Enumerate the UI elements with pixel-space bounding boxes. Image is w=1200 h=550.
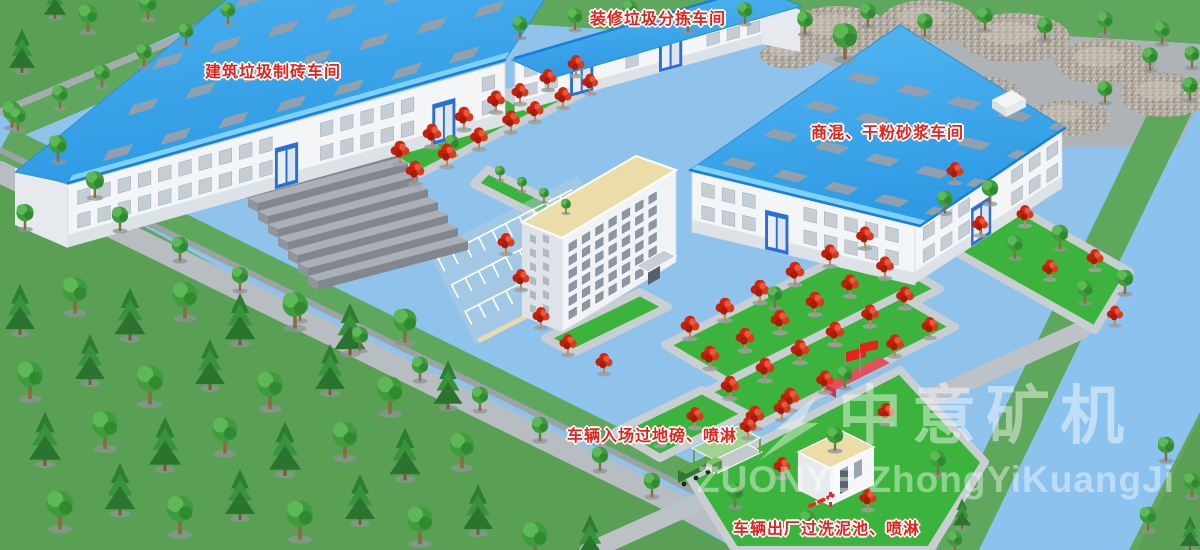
tree: [407, 506, 432, 548]
truck-wheel: [682, 482, 687, 487]
tree: [412, 357, 428, 384]
tree: [394, 309, 417, 347]
tree: [532, 417, 548, 444]
tree: [47, 491, 73, 534]
tree: [833, 23, 858, 63]
tree: [797, 12, 813, 37]
label-brick-workshop: 建筑垃圾制砖车间: [205, 58, 341, 82]
tree: [838, 366, 853, 390]
tree: [213, 417, 238, 457]
tree: [768, 286, 783, 310]
tree: [450, 433, 474, 472]
tree: [10, 108, 26, 133]
tree: [1097, 12, 1113, 37]
tree: [49, 135, 67, 164]
label-sorting-workshop: 装修垃圾分拣车间: [590, 5, 726, 29]
tree: [333, 422, 358, 462]
truck-wheel: [706, 470, 711, 475]
tree: [173, 282, 198, 322]
site-plan-rendering: 装修垃圾分拣车间 建筑垃圾制砖车间 商混、干粉砂浆车间 车辆入场过地磅、喷淋 车…: [0, 0, 1200, 550]
tree: [727, 483, 743, 510]
tree: [92, 411, 117, 453]
tree: [1098, 81, 1113, 105]
tree: [937, 191, 953, 216]
tree: [1184, 473, 1200, 500]
tree: [94, 65, 110, 90]
window: [702, 206, 715, 222]
tree: [517, 177, 527, 193]
window: [743, 192, 756, 208]
window: [722, 210, 735, 226]
tree: [1140, 507, 1156, 534]
tree: [1052, 225, 1068, 252]
tree: [112, 207, 128, 234]
tree: [1117, 270, 1133, 297]
tree: [137, 366, 163, 409]
truck-wheel: [694, 476, 699, 481]
tree: [539, 188, 549, 204]
striped-post: [829, 492, 832, 497]
label-vehicle-exit: 车辆出厂过洗泥池、喷淋: [733, 515, 920, 539]
tree: [179, 23, 194, 47]
label-mortar-workshop: 商混、干粉砂浆车间: [811, 119, 964, 143]
window: [824, 212, 837, 228]
tree: [1142, 48, 1158, 73]
tree: [136, 44, 152, 69]
tree: [257, 371, 282, 413]
tree: [513, 16, 528, 40]
tree: [561, 199, 571, 215]
tree: [1077, 281, 1093, 306]
tree: [1037, 18, 1053, 43]
tree: [860, 4, 876, 29]
tree: [738, 2, 753, 26]
tree: [568, 8, 583, 32]
tree: [917, 14, 933, 39]
tree: [827, 427, 843, 454]
window: [702, 183, 715, 199]
window: [743, 215, 756, 231]
tree: [221, 2, 236, 26]
tree: [17, 361, 42, 403]
tree: [377, 376, 402, 418]
tree: [52, 86, 68, 111]
window: [722, 188, 735, 204]
tree: [1182, 78, 1198, 103]
tree: [79, 5, 98, 36]
tree: [287, 501, 313, 544]
tree: [352, 327, 368, 354]
tree: [167, 496, 193, 539]
scene-svg: [0, 0, 1200, 550]
tree: [1158, 437, 1174, 464]
tree: [172, 237, 188, 264]
window: [886, 226, 899, 242]
label-vehicle-entry: 车辆入场过地磅、喷淋: [567, 422, 737, 446]
window: [804, 230, 817, 246]
gatehouse-door: [840, 466, 848, 494]
tree: [644, 473, 660, 500]
tree: [232, 267, 248, 294]
tree: [1007, 236, 1023, 261]
tree: [16, 204, 33, 232]
window: [804, 207, 817, 223]
tree: [495, 166, 505, 182]
window: [845, 240, 858, 256]
window: [845, 217, 858, 233]
tree: [1185, 46, 1200, 70]
tree: [472, 387, 488, 414]
tree: [977, 8, 993, 33]
tree: [930, 451, 946, 478]
tree: [592, 447, 608, 474]
tree: [63, 277, 88, 317]
tree: [86, 171, 104, 200]
tree: [1154, 22, 1170, 47]
tree: [982, 180, 998, 207]
tree: [283, 292, 308, 332]
